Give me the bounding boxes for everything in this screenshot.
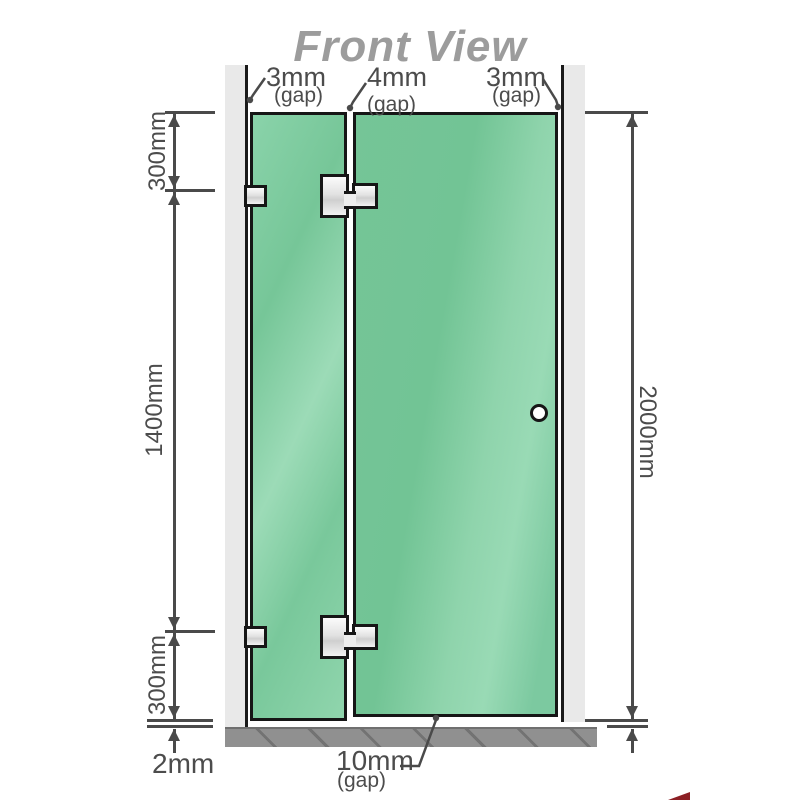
floor-base	[225, 727, 597, 747]
floor-gap-label-2mm: 2mm	[152, 748, 214, 780]
dim-label-300mm-bottom: 300mm	[144, 615, 172, 735]
gap-label-top-left-unit: (gap)	[274, 84, 323, 108]
arrowhead	[626, 729, 638, 741]
door-handle-knob	[530, 404, 548, 422]
left-wall	[225, 65, 246, 727]
arrowhead	[626, 706, 638, 718]
dim-label-300mm-top: 300mm	[144, 91, 172, 211]
door-glass-panel	[353, 112, 558, 717]
hinge-bottom-connector	[344, 632, 356, 650]
dim-label-1400mm: 1400mm	[141, 340, 169, 480]
gap-label-top-right-unit: (gap)	[492, 84, 541, 108]
tick-right-floor-top	[607, 725, 648, 728]
tick-right-glass-bottom	[585, 719, 648, 722]
right-wall-inner-edge	[561, 65, 564, 722]
dim-label-2000mm: 2000mm	[633, 362, 661, 502]
watermark-fragment	[668, 792, 690, 800]
hinge-top-connector	[344, 191, 356, 209]
arrowhead	[626, 115, 638, 127]
gap-label-top-center-value: 4mm	[367, 62, 427, 93]
tick-right-top	[585, 111, 648, 114]
wall-bracket-top	[244, 185, 267, 207]
right-wall	[564, 65, 585, 722]
gap-label-top-center-unit: (gap)	[367, 93, 416, 117]
gap-label-bottom-unit: (gap)	[337, 769, 386, 793]
wall-bracket-bottom	[244, 626, 267, 648]
